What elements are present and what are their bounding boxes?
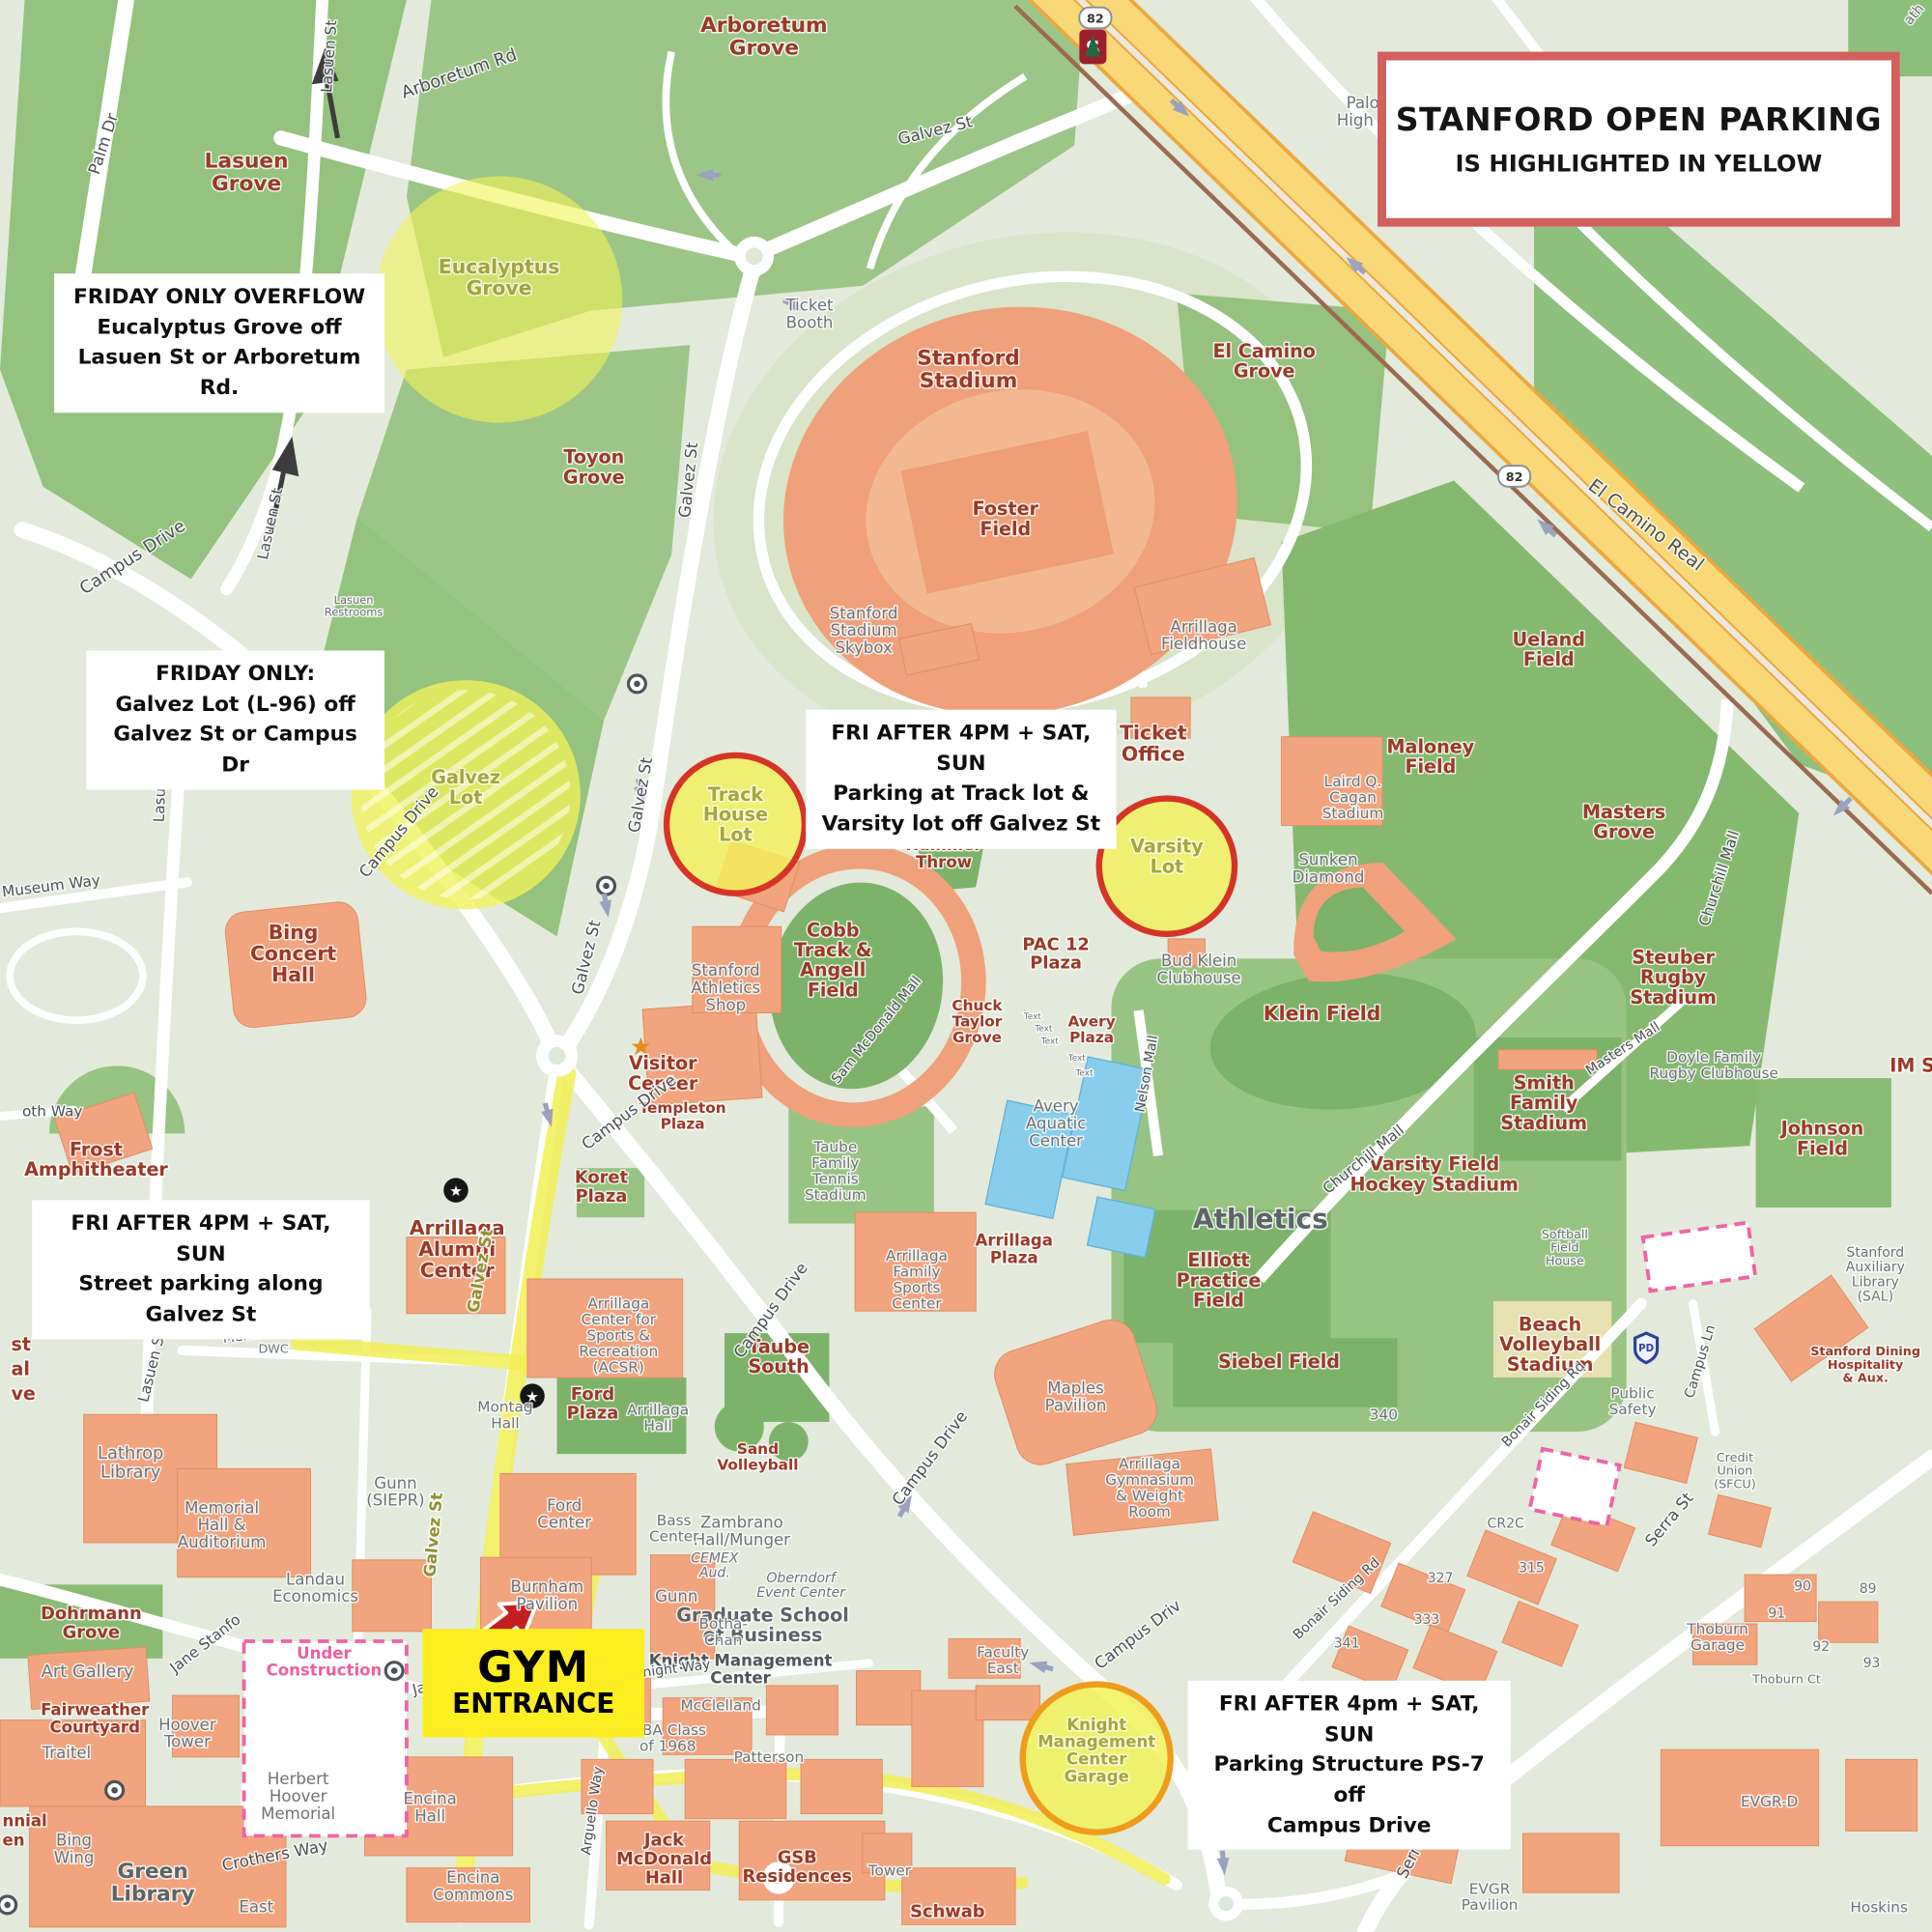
map-label: 89 [1860,1581,1877,1597]
map-label: 340 [1370,1406,1398,1423]
map-label: 92 [1812,1639,1830,1655]
map-label: nnial [3,1811,47,1830]
map-label: HooverTower [158,1716,216,1751]
map-label: StanfordStadium [917,347,1020,393]
map-label: Text [1040,1037,1060,1046]
map-label: GreenLibrary [111,1860,195,1906]
map-label: SunkenDiamond [1293,850,1365,886]
note-line: Parking Structure PS-7 off [1200,1750,1498,1811]
legend-box: STANFORD OPEN PARKING IS HIGHLIGHTED IN … [1378,52,1900,227]
map-label: ZambranoHall/Munger [694,1514,790,1549]
map-label: FairweatherCourtyard [41,1701,150,1737]
police-badge-icon: PD [1635,1333,1658,1363]
map-label: Laird Q.CaganStadium [1322,773,1384,822]
map-label: Text [1074,1069,1094,1079]
route-82-shield-icon: 82 [1498,466,1530,487]
map-label: AveryPlaza [1068,1012,1116,1046]
svg-text:82: 82 [1087,13,1104,27]
legend-subtitle: IS HIGHLIGHTED IN YELLOW [1386,150,1891,177]
map-label: ArrillagaFamilySportsCenter [886,1247,948,1313]
map-label: Doyle FamilyRugby Clubhouse [1650,1048,1778,1082]
map-label: MastersGrove [1582,801,1665,843]
map-label: BurnhamPavilion [510,1577,583,1613]
note-friday-galvez: FRIDAY ONLY:Galvez Lot (L-96) offGalvez … [86,650,384,789]
map-label: EVGR-D [1741,1793,1798,1810]
map-label: StanfordStadiumSkybox [830,604,898,657]
map-label: 90 [1794,1579,1811,1595]
map-label: AveryAquaticCenter [1026,1097,1086,1151]
map-label: ToyonGrove [563,446,625,489]
map-label: IM S [1889,1055,1932,1077]
note-line: Varsity lot off Galvez St [818,810,1104,839]
map-label: 315 [1519,1561,1545,1577]
gym-entrance-line2: ENTRANCE [426,1691,640,1719]
map-label: ThoburnGarage [1686,1620,1748,1654]
map-label: Athletics [1193,1204,1328,1236]
map-label: TicketOffice [1120,721,1187,765]
map-label: 91 [1768,1606,1785,1622]
svg-text:★: ★ [449,1182,463,1200]
svg-text:82: 82 [1506,470,1523,485]
map-label: Siebel Field [1218,1350,1340,1373]
stanford-logo-icon: S [1079,30,1106,65]
note-line: FRIDAY ONLY: [99,659,372,689]
map-label: 327 [1428,1571,1454,1586]
map-label: FosterField [973,497,1039,540]
gym-entrance-line1: GYM [426,1647,640,1691]
note-line: FRI AFTER 4PM + SAT, SUN [818,719,1104,780]
map-label: TicketBooth [784,296,834,331]
map-label: TaubeFamilyTennisStadium [805,1139,867,1205]
note-track-varsity: FRI AFTER 4PM + SAT, SUNParking at Track… [806,710,1116,849]
map-label: oth Way [22,1103,83,1121]
map-label: Text [1034,1025,1053,1035]
note-line: FRIDAY ONLY OVERFLOW [67,282,372,312]
map-label: PAC 12Plaza [1022,934,1089,973]
map-label: LasuenGrove [205,149,289,195]
map-label: DWC [258,1343,288,1357]
map-label: MaplesPavilion [1045,1379,1107,1415]
map-label: 333 [1414,1612,1440,1628]
map-label: FordPlaza [567,1384,619,1423]
note-line: FRI AFTER 4PM + SAT, SUN [44,1208,357,1269]
map-label: Art Gallery [42,1662,134,1682]
map-label: BingWing [54,1832,95,1867]
map-label: CreditUnion(SFCU) [1714,1451,1756,1492]
svg-text:PD: PD [1638,1344,1654,1354]
map-label: CR2C [1488,1517,1524,1532]
map-label: 93 [1863,1656,1881,1671]
note-line: Street parking along Galvez St [44,1269,357,1330]
map-label: ChuckTaylorGrove [952,997,1003,1046]
map-label: Patterson [734,1748,805,1766]
map-label: Text [1067,1054,1087,1064]
landmark-star-icon: ★ [443,1178,469,1203]
route-82-shield-icon: 82 [1079,8,1111,29]
legend-title: STANFORD OPEN PARKING [1386,101,1891,138]
map-label: Traitel [42,1744,92,1762]
map-label: Tower [867,1861,912,1879]
map-label: PublicSafety [1609,1385,1657,1419]
map-label: East [239,1898,273,1917]
note-line: Galvez Lot (L-96) off [99,690,372,720]
note-line: Campus Drive [1200,1810,1498,1840]
map-label: Klein Field [1264,1002,1381,1025]
map-label: LathropLibrary [98,1443,163,1482]
map-label: HerbertHooverMemorial [261,1770,335,1823]
note-street-parking: FRI AFTER 4PM + SAT, SUNStreet parking a… [32,1200,369,1339]
note-line: Parking at Track lot & [818,779,1104,809]
map-label: 341 [1334,1635,1360,1651]
note-ps7: FRI AFTER 4pm + SAT, SUNParking Structur… [1188,1681,1511,1850]
gym-entrance-label: GYM ENTRANCE [422,1629,644,1737]
map-label: Schwab [910,1902,984,1922]
map-label: UelandField [1513,628,1585,670]
map-label: Thoburn Ct [1751,1672,1821,1687]
note-line: Eucalyptus Grove off [67,313,372,343]
map-label: Hoskins [1850,1899,1908,1917]
map-label: SteuberRugbyStadium [1630,946,1717,1008]
note-line: FRI AFTER 4pm + SAT, SUN [1200,1690,1498,1750]
note-friday-overflow: FRIDAY ONLY OVERFLOWEucalyptus Grove off… [54,273,384,412]
map-label: Bud KleinClubhouse [1156,952,1240,987]
map-label: SmithFamilyStadium [1500,1072,1587,1134]
map-label: st [11,1333,31,1355]
note-line: Lasuen St or Arboretum Rd. [67,343,372,404]
map-label: en [3,1832,25,1850]
map-label: Gunn [655,1587,697,1605]
map-label: KoretPlaza [575,1167,629,1206]
map-label: Gunn(SIEPR) [366,1474,424,1510]
map-label: al [11,1357,29,1379]
stanford-parking-map: S 82 82 PD ★ ★ ★ [0,0,1932,1932]
map-label: EVGRPavilion [1462,1880,1519,1914]
map-label: ve [11,1382,35,1405]
map-label: Text [1023,1012,1042,1022]
map-label: McClelland [681,1696,761,1714]
map-label: ArrillagaFieldhouse [1161,617,1246,653]
map-label: OberndorfEvent Center [756,1571,846,1601]
note-line: Galvez St or Campus Dr [99,720,372,781]
map-label: Botha-Chan [698,1615,747,1649]
